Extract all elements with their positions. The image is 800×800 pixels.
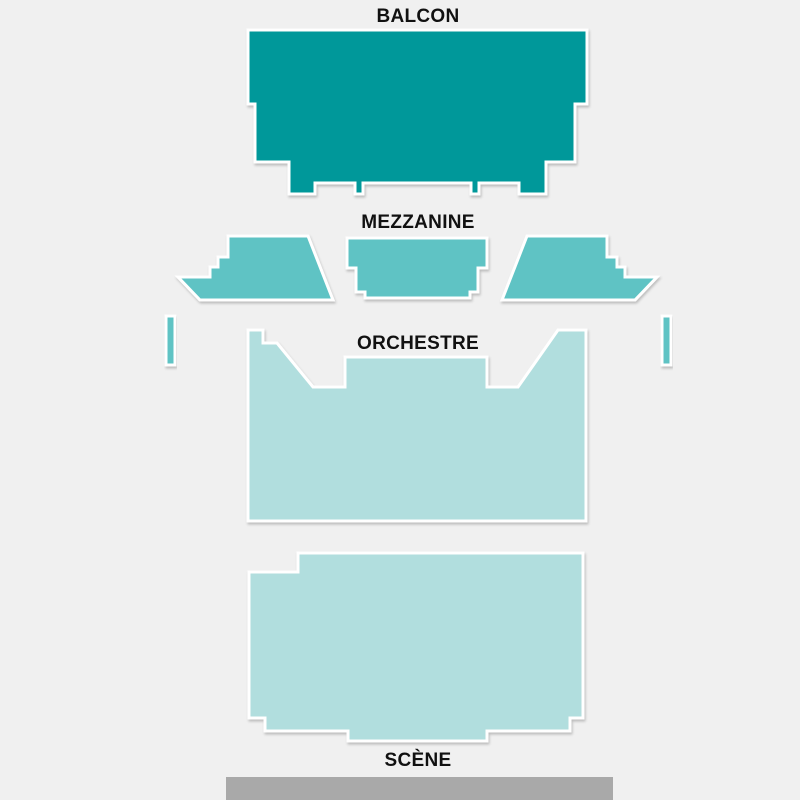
seat-map-canvas <box>0 0 800 800</box>
loge-right-strip-section[interactable] <box>662 316 671 365</box>
mezzanine-label: MEZZANINE <box>361 213 475 232</box>
balcon-section[interactable] <box>248 30 587 194</box>
scene-label: SCÈNE <box>385 751 452 770</box>
mezzanine-center-section[interactable] <box>347 238 487 298</box>
mezzanine-right-section[interactable] <box>502 236 657 300</box>
balcon-label: BALCON <box>376 7 459 26</box>
orchestre-rear-section[interactable] <box>248 330 586 521</box>
loge-left-strip-section[interactable] <box>166 316 175 365</box>
venue-seat-map: BALCON MEZZANINE ORCHESTRE SCÈNE <box>0 0 800 800</box>
orchestre-front-section[interactable] <box>249 553 583 741</box>
mezzanine-left-section[interactable] <box>178 236 333 300</box>
orchestre-label: ORCHESTRE <box>357 334 479 353</box>
stage-floor <box>226 777 613 800</box>
